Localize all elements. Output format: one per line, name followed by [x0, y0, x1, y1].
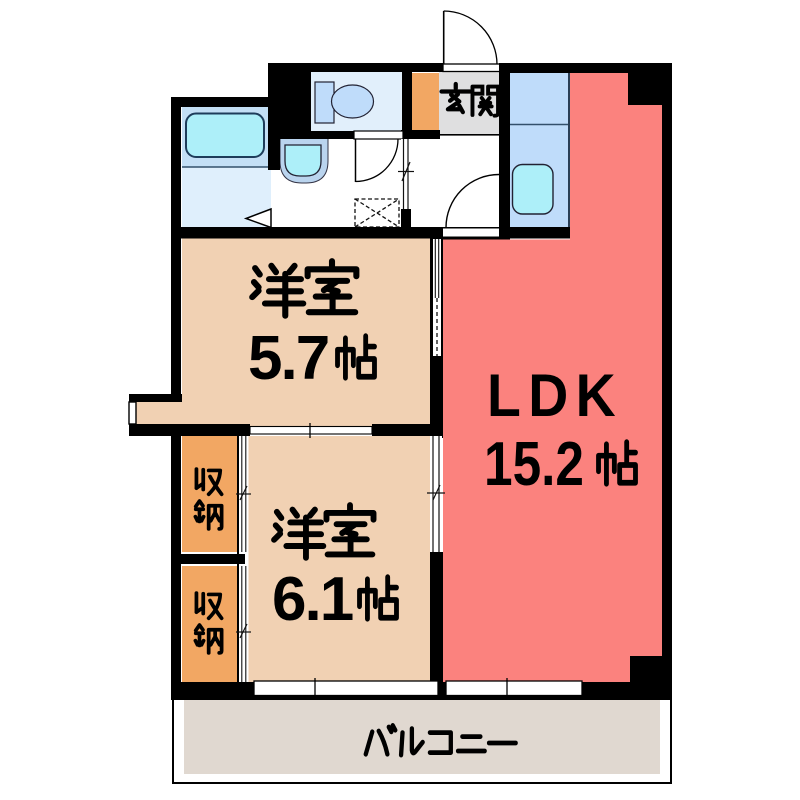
svg-text:LDK: LDK [487, 362, 623, 429]
svg-text:15.2: 15.2 [484, 430, 584, 499]
svg-text:6.1: 6.1 [272, 565, 353, 634]
svg-text:5.7: 5.7 [248, 324, 328, 393]
